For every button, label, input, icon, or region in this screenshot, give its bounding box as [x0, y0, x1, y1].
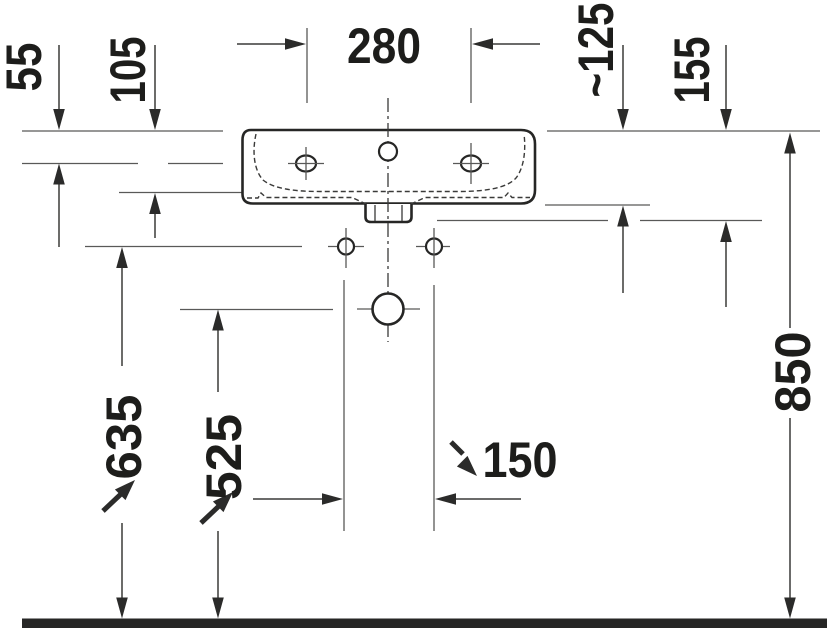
arrowhead-down-icon: [212, 598, 224, 619]
arrowhead-down-icon: [784, 598, 796, 619]
arrowhead-up-icon: [617, 206, 629, 227]
arrowhead-left-icon: [435, 493, 456, 505]
dimension-55: 55: [0, 43, 65, 248]
dimension-150: 150: [253, 432, 558, 505]
dim-525-label: 525: [196, 414, 252, 500]
diagonal-arrow-icon: [103, 480, 135, 511]
dim-55-label: 55: [0, 43, 52, 92]
faucet-hole-center: [379, 143, 397, 161]
dimension-635: 635: [96, 247, 152, 619]
arrowhead-up-icon: [784, 133, 796, 154]
arrowhead-left-icon: [472, 38, 493, 50]
faucet-hole-center-circle: [379, 143, 397, 161]
dim-105-label: 105: [100, 37, 156, 104]
fixing-hole-left: [338, 228, 354, 268]
arrowhead-right-icon: [322, 493, 343, 505]
drain-outlet: [373, 294, 404, 325]
dimension-125: ~125: [568, 3, 629, 294]
arrowhead-up-icon: [149, 193, 161, 214]
arrowhead-down-icon: [53, 109, 65, 130]
dimension-155: 155: [664, 37, 732, 308]
dim-125-label: ~125: [568, 3, 624, 98]
washbasin-outline: [243, 130, 536, 204]
dimension-850: 850: [765, 133, 821, 619]
arrowhead-down-icon: [149, 109, 161, 130]
floor-line: [22, 619, 827, 628]
arrowhead-down-icon: [617, 109, 629, 130]
dim-150-label: 150: [483, 432, 558, 488]
arrowhead-right-icon: [285, 38, 306, 50]
fixing-hole-right: [426, 228, 442, 268]
diagonal-arrow-shaft: [201, 506, 219, 523]
diagonal-arrow-shaft: [103, 494, 121, 511]
arrowhead-down-icon: [720, 109, 732, 130]
dimension-280: 280: [237, 18, 540, 74]
arrowhead-up-icon: [116, 247, 128, 268]
diagonal-arrow-shaft: [451, 442, 463, 454]
dim-155-label: 155: [664, 37, 720, 104]
washbasin-dimension-diagram: 280 55 105 ~125 155 850: [0, 0, 837, 628]
drawing-canvas: 280 55 105 ~125 155 850: [0, 0, 837, 628]
dimension-105: 105: [100, 37, 161, 239]
arrowhead-up-icon: [212, 310, 224, 331]
diagonal-arrowhead: [457, 456, 477, 476]
dim-635-label: 635: [96, 395, 152, 480]
diagonal-arrow-icon: [451, 442, 477, 476]
dim-280-label: 280: [347, 18, 421, 74]
dim-850-label: 850: [765, 332, 821, 413]
arrowhead-up-icon: [720, 221, 732, 242]
dimension-525: 525: [196, 310, 252, 619]
arrowhead-up-icon: [53, 164, 65, 185]
arrowhead-down-icon: [116, 598, 128, 619]
drain-outlet-circle: [373, 294, 404, 325]
